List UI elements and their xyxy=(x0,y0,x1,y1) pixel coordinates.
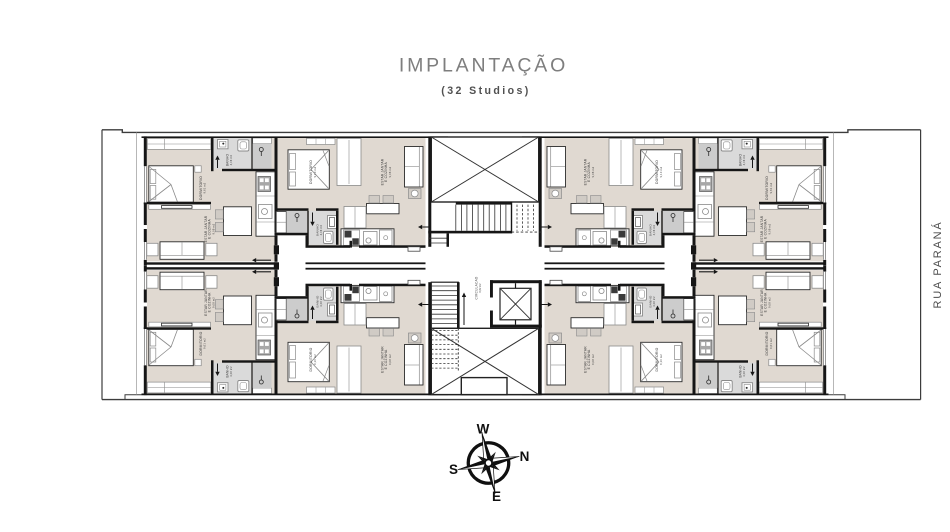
svg-text:CIRCULACAO: CIRCULACAO xyxy=(475,276,479,299)
svg-text:BANHO: BANHO xyxy=(316,295,320,307)
svg-text:(32 Studios): (32 Studios) xyxy=(441,85,530,97)
svg-text:W: W xyxy=(477,422,490,437)
svg-text:9,61 m2: 9,61 m2 xyxy=(769,338,773,349)
svg-text:BANHO: BANHO xyxy=(739,365,743,378)
svg-text:9,08 m2: 9,08 m2 xyxy=(767,297,771,308)
svg-text:9,61 m2: 9,61 m2 xyxy=(769,182,773,193)
svg-text:N: N xyxy=(520,449,530,464)
svg-text:S: S xyxy=(449,462,458,477)
svg-text:BANHO: BANHO xyxy=(226,154,230,167)
svg-text:E: E xyxy=(492,489,501,504)
svg-text:9,08 m2: 9,08 m2 xyxy=(388,166,392,177)
svg-text:9,10 m2: 9,10 m2 xyxy=(313,166,317,177)
svg-text:E COZINHA: E COZINHA xyxy=(208,292,212,312)
svg-text:BANHO: BANHO xyxy=(226,365,230,378)
svg-text:9,61 m2: 9,61 m2 xyxy=(203,338,207,349)
svg-text:4,08 m2: 4,08 m2 xyxy=(653,224,656,235)
svg-text:BANHO: BANHO xyxy=(649,295,653,307)
svg-text:E COZINHA: E COZINHA xyxy=(384,349,388,369)
svg-text:DORMITORIO: DORMITORIO xyxy=(309,347,313,371)
svg-text:4,08 m2: 4,08 m2 xyxy=(743,366,746,377)
svg-text:9,08 m2: 9,08 m2 xyxy=(211,297,215,308)
svg-text:DORMITORIO: DORMITORIO xyxy=(765,176,769,200)
svg-text:E COZINHA: E COZINHA xyxy=(384,162,388,182)
svg-text:9,08 m2: 9,08 m2 xyxy=(388,354,392,365)
svg-text:BANHO: BANHO xyxy=(739,154,743,167)
svg-text:E COZINHA: E COZINHA xyxy=(208,219,212,239)
svg-text:DORMITORIO: DORMITORIO xyxy=(765,331,769,355)
svg-text:9,10 m2: 9,10 m2 xyxy=(313,354,317,365)
svg-text:DORMITORIO: DORMITORIO xyxy=(199,176,203,200)
svg-text:E COZINHA: E COZINHA xyxy=(587,162,591,182)
svg-text:9,10 m2: 9,10 m2 xyxy=(659,354,663,365)
svg-text:9,08 m2: 9,08 m2 xyxy=(591,354,595,365)
svg-text:4,08 m2: 4,08 m2 xyxy=(653,296,656,307)
svg-text:DORMITORIO: DORMITORIO xyxy=(655,160,659,184)
svg-text:BANHO: BANHO xyxy=(649,224,653,236)
svg-text:9,61 m2: 9,61 m2 xyxy=(203,182,207,193)
svg-text:E COZINHA: E COZINHA xyxy=(587,349,591,369)
svg-text:4,08 m2: 4,08 m2 xyxy=(230,366,233,377)
svg-text:DORMITORIO: DORMITORIO xyxy=(309,160,313,184)
svg-text:9,10 m2: 9,10 m2 xyxy=(659,166,663,177)
svg-text:DORMITORIO: DORMITORIO xyxy=(655,347,659,371)
svg-text:4,08 m2: 4,08 m2 xyxy=(743,154,746,165)
svg-text:4,08 m2: 4,08 m2 xyxy=(320,296,323,307)
svg-text:BANHO: BANHO xyxy=(316,224,320,236)
svg-text:RUA PARANÁ: RUA PARANÁ xyxy=(931,220,944,308)
svg-text:9,08 m2: 9,08 m2 xyxy=(591,166,595,177)
svg-text:4,08 m2: 4,08 m2 xyxy=(230,154,233,165)
svg-text:E COZINHA: E COZINHA xyxy=(764,219,768,239)
svg-text:9,08 m2: 9,08 m2 xyxy=(211,223,215,234)
svg-text:E COZINHA: E COZINHA xyxy=(764,292,768,312)
svg-text:4,08 m2: 4,08 m2 xyxy=(320,224,323,235)
svg-text:IMPLANTAÇÃO: IMPLANTAÇÃO xyxy=(399,52,568,76)
svg-text:6,62 m2: 6,62 m2 xyxy=(479,283,482,293)
svg-text:DORMITORIO: DORMITORIO xyxy=(199,331,203,355)
svg-text:9,08 m2: 9,08 m2 xyxy=(767,223,771,234)
